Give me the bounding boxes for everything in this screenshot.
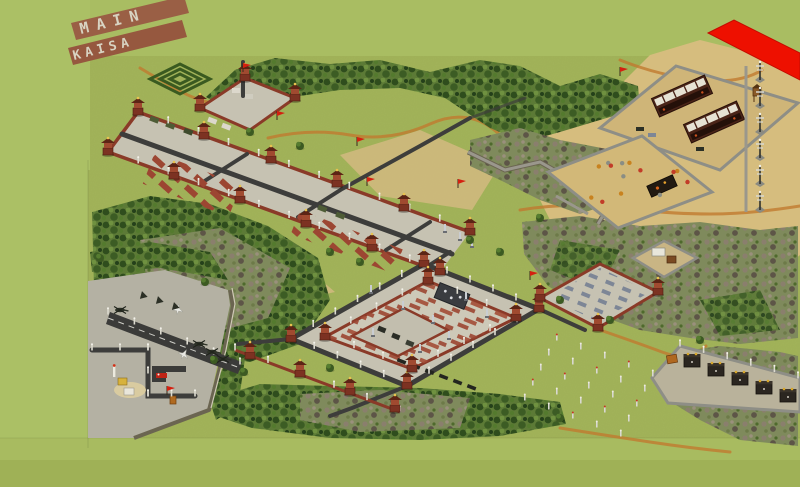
lamp-post [133, 317, 135, 324]
lamp-post [456, 287, 458, 294]
map-scene[interactable]: MAIN KAISA [0, 0, 800, 487]
fog-bottom [0, 460, 800, 487]
lamp-post [492, 284, 494, 291]
lamp-post [318, 171, 320, 178]
lamp-post [333, 380, 335, 387]
lamp-post [379, 193, 381, 200]
missile-tip [113, 364, 116, 367]
lamp-post [267, 356, 269, 363]
lamp-post [366, 393, 368, 400]
lamp-post [107, 307, 109, 314]
lamp-post [147, 343, 149, 350]
lamp-post [379, 282, 381, 289]
lamp-post [228, 138, 230, 145]
lamp-post [472, 341, 474, 348]
fog-left [0, 150, 88, 487]
lamp-post [797, 371, 799, 378]
fort-building-white[interactable] [652, 248, 665, 256]
lamp-post [349, 233, 351, 240]
lamp-post [679, 339, 681, 346]
lamp-post [428, 366, 430, 373]
lamp-post [515, 293, 517, 300]
lamp-post [194, 389, 196, 396]
lamp-post [376, 302, 378, 309]
lamp-post [350, 316, 352, 323]
fire-truck[interactable] [156, 373, 167, 378]
lamp-post [313, 342, 315, 349]
lamp-post [186, 337, 188, 344]
lamp-post [258, 149, 260, 156]
fort-shack[interactable] [667, 256, 676, 263]
lamp-post [703, 346, 705, 353]
lamp-post [336, 351, 338, 358]
lamp-post [91, 343, 93, 350]
lamp-post [383, 370, 385, 377]
lamp-post [348, 182, 350, 189]
lamp-post [318, 222, 320, 229]
lamp-post [726, 352, 728, 359]
annex-truck-2[interactable] [245, 94, 253, 99]
white-tent[interactable] [124, 388, 134, 395]
lamp-post [750, 358, 752, 365]
lamp-post [469, 275, 471, 282]
lamp-post [773, 365, 775, 372]
lamp-post [357, 295, 359, 302]
lamp-post [450, 354, 452, 361]
lamp-post [439, 214, 441, 221]
lamp-post [379, 243, 381, 250]
lamp-post [198, 178, 200, 185]
lamp-post [171, 389, 173, 396]
lamp-post [486, 299, 488, 306]
yellow-tent[interactable] [118, 378, 127, 385]
game-map-viewport[interactable]: MAIN KAISA [0, 0, 800, 487]
lamp-post [353, 341, 355, 348]
lamp-post [489, 324, 491, 331]
lamp-post [382, 352, 384, 359]
lamp-post [409, 254, 411, 261]
lamp-post [167, 116, 169, 123]
fire-truck-cab [158, 374, 160, 376]
lamp-post [119, 343, 121, 350]
lamp-post [147, 366, 149, 373]
lamp-post [258, 200, 260, 207]
lamp-post [401, 270, 403, 277]
lamp-post [228, 189, 230, 196]
lamp-post [234, 343, 236, 350]
lamp-post [446, 266, 448, 273]
annex-truck-1[interactable] [232, 88, 240, 93]
lamp-post [360, 360, 362, 367]
lamp-post [137, 156, 139, 163]
lamp-post [147, 389, 149, 396]
lamp-post [239, 357, 241, 364]
orange-structure[interactable] [666, 354, 677, 364]
lamp-post [437, 350, 439, 357]
lamp-post [312, 320, 314, 327]
lamp-post [334, 307, 336, 314]
lamp-post [288, 160, 290, 167]
lamp-post [463, 337, 465, 344]
lamp-post [288, 211, 290, 218]
crate-tower[interactable] [170, 396, 176, 404]
lamp-post [494, 328, 496, 335]
lamp-post [160, 327, 162, 334]
lamp-post [401, 288, 403, 295]
missile-monument[interactable] [113, 366, 115, 377]
